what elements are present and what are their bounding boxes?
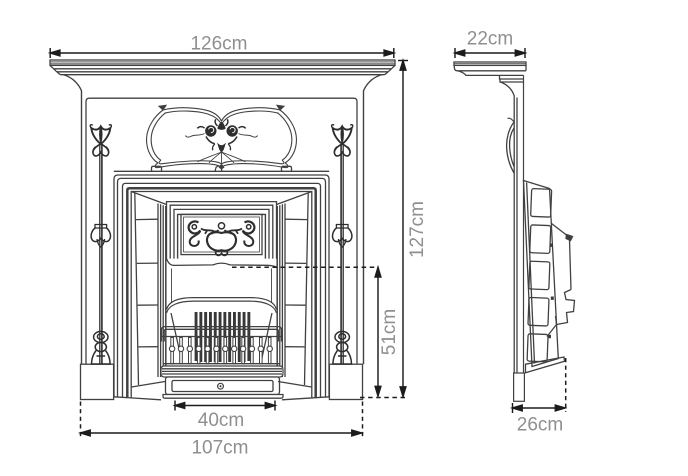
svg-text:40cm: 40cm (198, 410, 244, 431)
svg-text:51cm: 51cm (379, 309, 400, 355)
svg-text:26cm: 26cm (517, 415, 563, 436)
svg-text:126cm: 126cm (190, 34, 247, 55)
svg-text:107cm: 107cm (191, 438, 248, 459)
svg-text:22cm: 22cm (467, 29, 513, 50)
svg-text:127cm: 127cm (407, 201, 428, 258)
